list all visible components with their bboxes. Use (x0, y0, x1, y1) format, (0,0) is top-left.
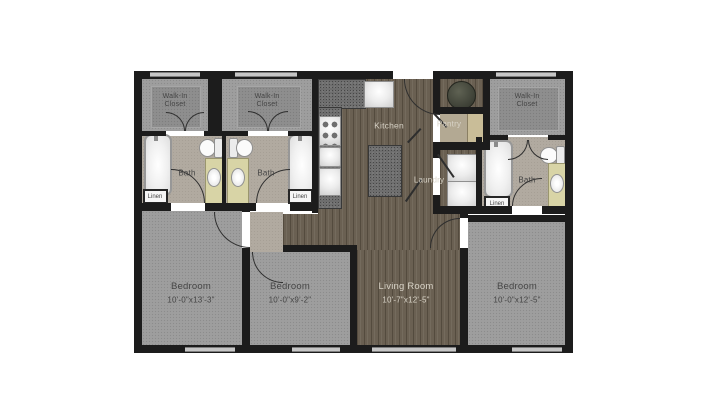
label-linen-3: Linen (490, 201, 505, 207)
bathtub-1-faucet-icon (154, 136, 158, 141)
label-living-room-dimensions: 10'-7"x12'-5" (382, 296, 429, 305)
label-bedroom-3-dimensions: 10'-0"x12'-5" (493, 296, 540, 305)
toilet-2-bowl (236, 139, 253, 157)
wall-bath-bottom-c (290, 203, 318, 211)
wall-closet1-closet2 (208, 79, 222, 131)
label-bedroom-1: Bedroom (171, 282, 211, 292)
stove (319, 116, 341, 146)
label-bath-1: Bath (178, 169, 195, 178)
dryer (447, 181, 477, 209)
wall-laundry-left-bottom (433, 195, 440, 206)
window-closet-2 (235, 72, 297, 77)
wall-under-closet3-b (548, 135, 565, 140)
vanity-sink-2 (231, 168, 245, 187)
washer (447, 154, 477, 182)
vanity-sink-1 (207, 168, 221, 187)
wall-under-closet1-a (142, 131, 166, 136)
label-bedroom-1-dimensions: 10'-0"x13'-3" (167, 296, 214, 305)
wall-kitchen-left (312, 71, 318, 213)
bathtub-3-faucet-icon (494, 142, 498, 147)
wall-bedroom1-right-stub (242, 203, 250, 212)
wall-bedroom1-right (242, 248, 250, 353)
label-living-room: Living Room (378, 282, 433, 292)
vanity-sink-3 (550, 174, 564, 193)
dishwasher (319, 168, 341, 196)
label-walk-in-closet-3: Walk-In Closet (515, 93, 540, 109)
patio-door-living-room (372, 347, 456, 352)
floor-plan: Walk-In Closet Walk-In Closet Walk-In Cl… (0, 0, 720, 404)
stove-burners-icon (320, 117, 340, 145)
kitchen-sink (319, 147, 341, 167)
wall-left (134, 71, 142, 353)
bathtub-2-faucet-icon (298, 136, 302, 141)
wall-bath-wet-divider (222, 134, 226, 203)
wall-bath-bottom-a (134, 203, 171, 211)
kitchen-island (368, 145, 402, 197)
window-closet-1 (150, 72, 200, 77)
label-bedroom-3: Bedroom (497, 282, 537, 292)
wall-pantry-closet3 (483, 71, 490, 144)
wall-under-closet2-c (288, 131, 312, 136)
label-laundry: Laundry (414, 176, 444, 185)
wall-bedroom2-top (283, 245, 357, 252)
window-bedroom-3 (512, 347, 562, 352)
label-bedroom-2-dimensions: 10'-0"x9'-2" (269, 296, 312, 305)
label-walk-in-closet-1: Walk-In Closet (163, 93, 188, 109)
water-heater-icon (447, 81, 476, 110)
refrigerator (364, 81, 394, 108)
wall-bath3-bottom-a (433, 206, 512, 214)
label-pantry: Pantry (437, 120, 461, 129)
label-kitchen: Kitchen (374, 122, 404, 131)
wall-bath3-bottom-b (542, 206, 573, 214)
wall-bedroom2-living (350, 245, 357, 353)
bathtub-1 (144, 134, 172, 196)
wall-bedroom3-left (460, 248, 468, 353)
window-bedroom-1 (185, 347, 235, 352)
window-closet-3 (496, 72, 556, 77)
label-bedroom-2: Bedroom (270, 282, 310, 292)
label-linen-2: Linen (293, 194, 308, 200)
label-bath-2: Bath (257, 169, 274, 178)
hall-vestibule (250, 212, 283, 252)
wall-under-closets-b (204, 131, 248, 136)
label-bath-3: Bath (518, 176, 535, 185)
kitchen-counter-top (318, 79, 366, 109)
wall-laundry-bath3 (476, 137, 482, 207)
window-bedroom-2 (292, 347, 340, 352)
wall-bedroom3-top (468, 215, 565, 222)
wall-under-closet3-a (490, 135, 508, 140)
label-walk-in-closet-2: Walk-In Closet (255, 93, 280, 109)
label-linen-1: Linen (148, 194, 163, 200)
wall-mech-bottom (433, 107, 490, 114)
